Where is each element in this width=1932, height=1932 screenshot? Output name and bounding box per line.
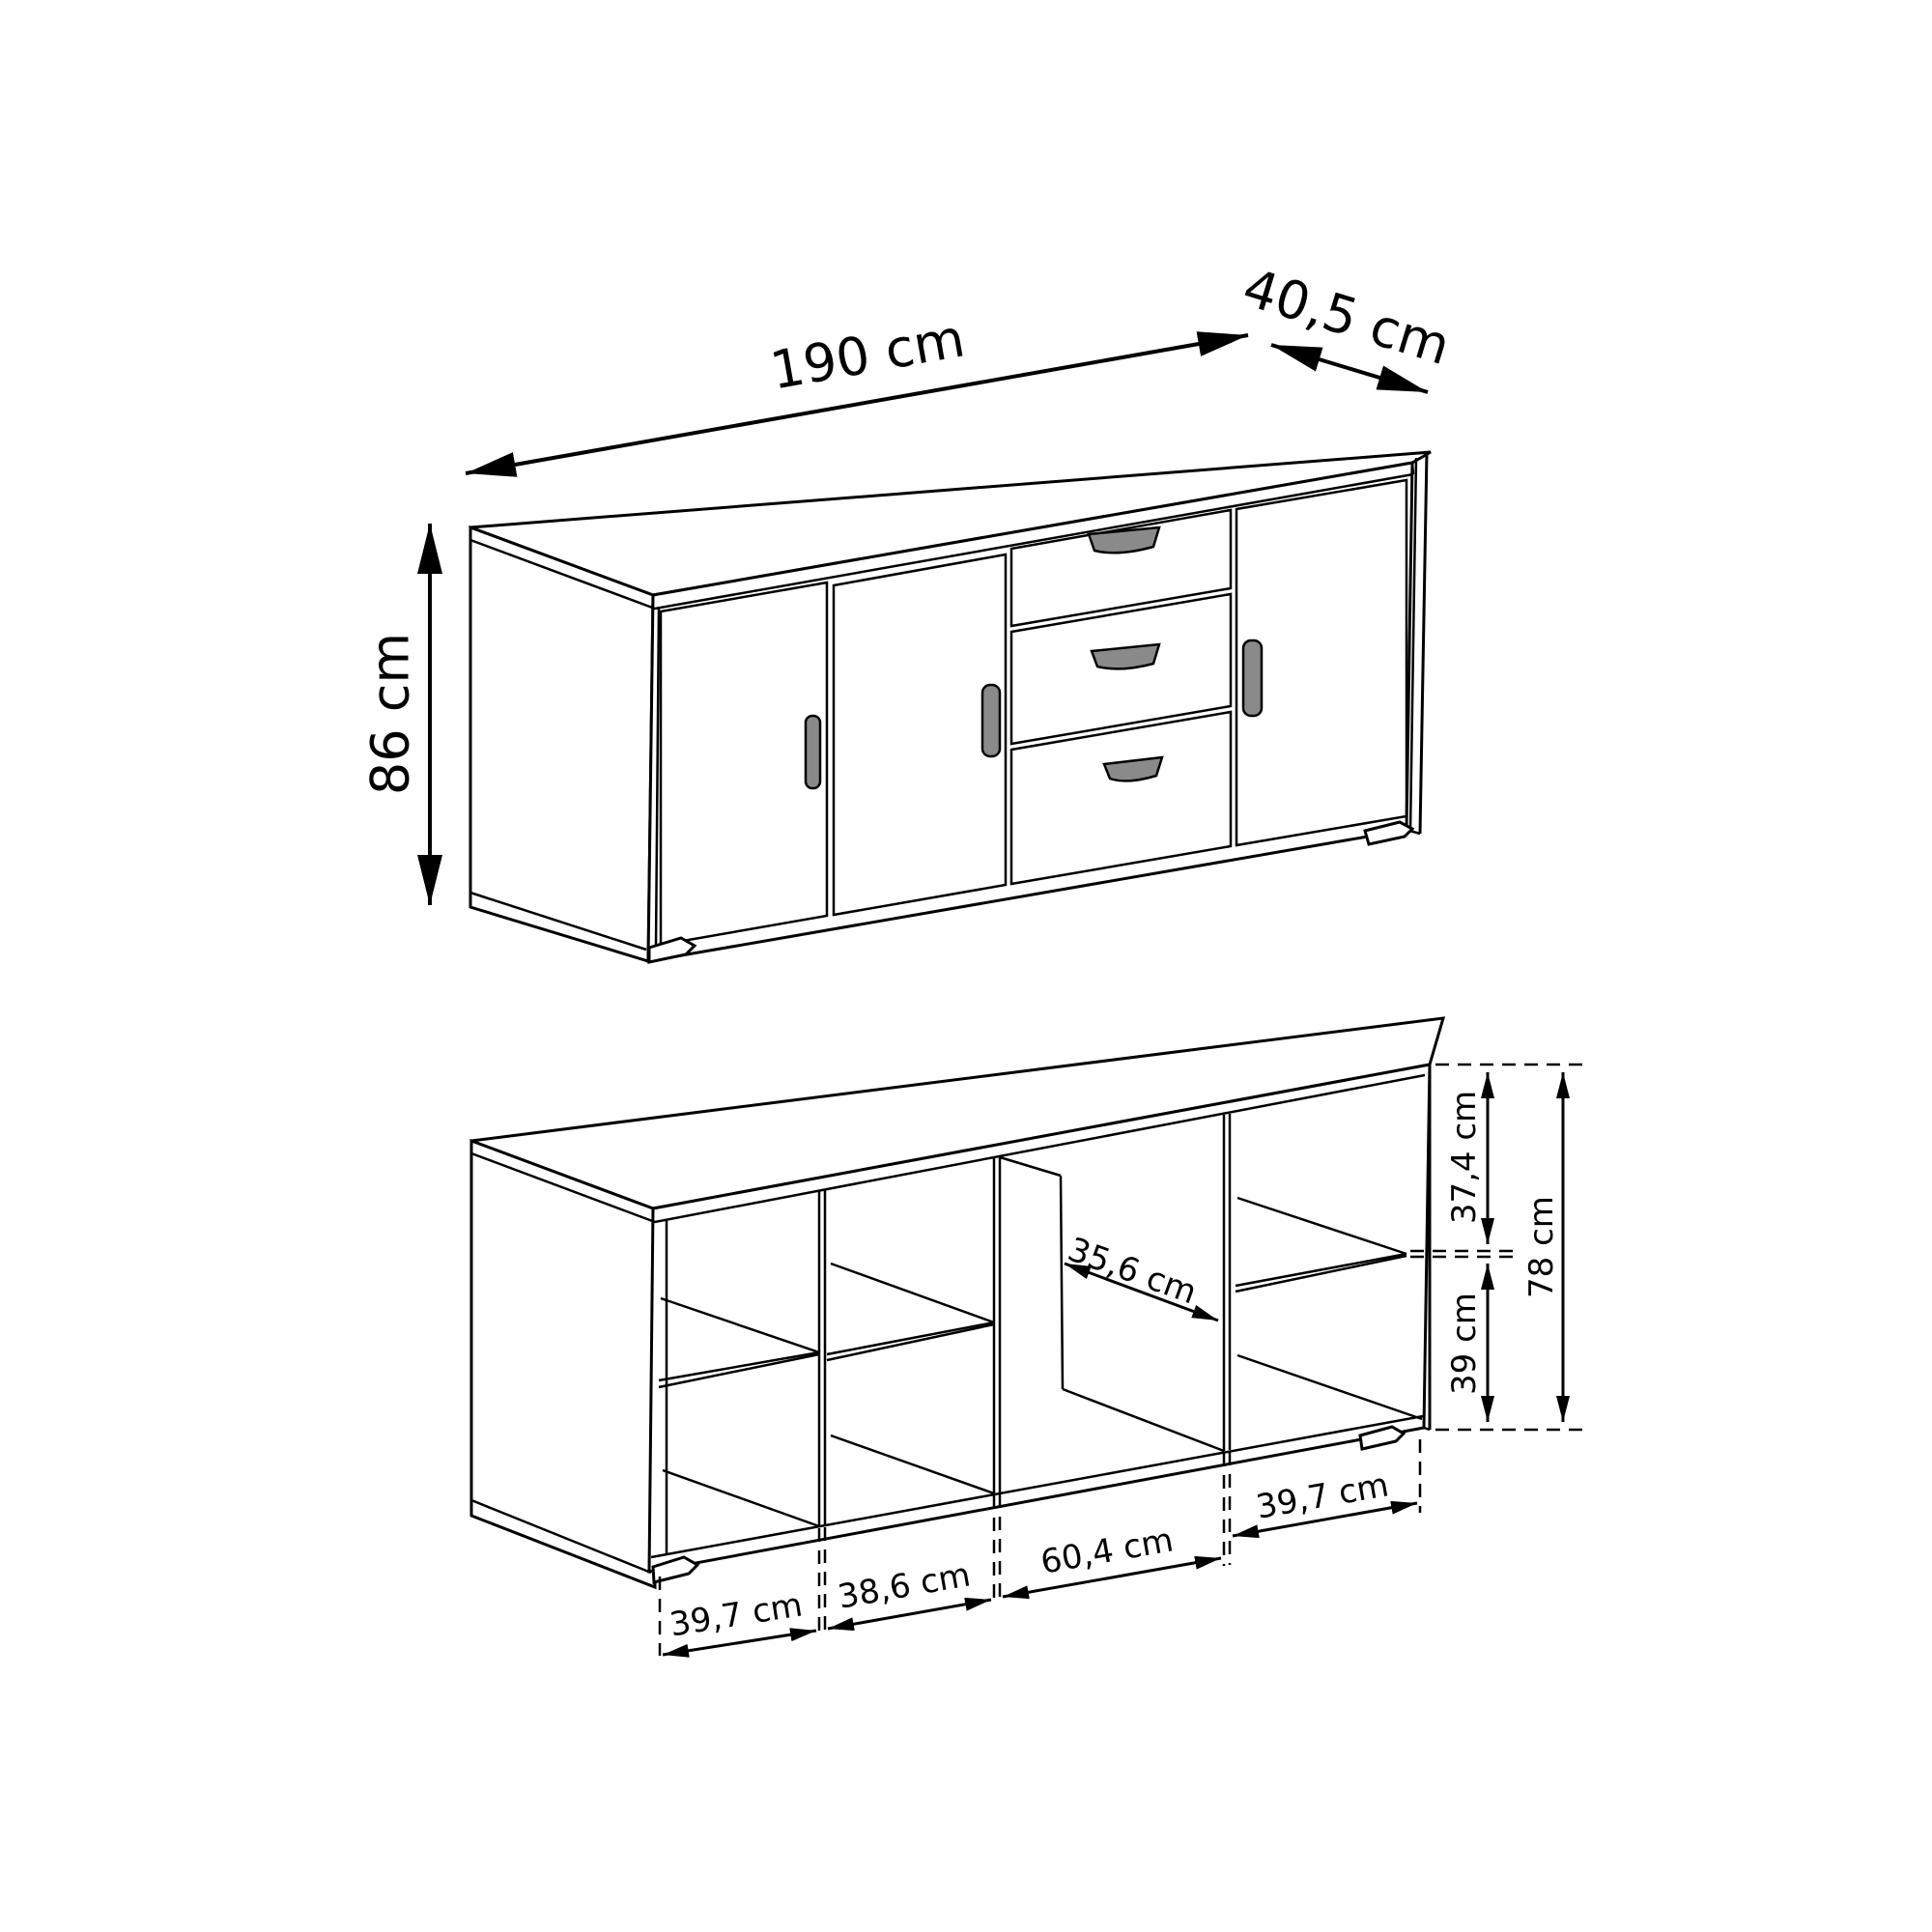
dim-label-height: 86 cm: [360, 633, 421, 795]
door-right-handle: [1243, 640, 1262, 716]
diagram-canvas: 190 cm 40,5 cm 86 cm: [0, 0, 1932, 1932]
door-left-handle: [806, 716, 820, 788]
furniture-dimension-diagram: 190 cm 40,5 cm 86 cm: [0, 0, 1932, 1932]
right-panel-outer-edge: [1420, 452, 1427, 834]
interior-left-side-panel: [471, 1141, 655, 1587]
sideboard-interior-view: 37,4 cm 39 cm 78 cm 35,6 cm 39,7 cm 38,6…: [471, 1018, 1584, 1656]
dim-label-compartment-4: 39,7 cm: [1253, 1465, 1391, 1526]
dim-label-width: 190 cm: [766, 307, 969, 401]
dim-label-upper-height: 37,4 cm: [1445, 1091, 1484, 1224]
top-panel-edge-join: [1412, 463, 1413, 474]
dim-label-depth: 40,5 cm: [1236, 257, 1458, 377]
sideboard-perspective-view: 190 cm 40,5 cm 86 cm: [360, 257, 1458, 962]
dim-label-interior-height: 78 cm: [1522, 1196, 1561, 1298]
dim-label-compartment-3: 60,4 cm: [1037, 1520, 1176, 1581]
door-middle-handle: [982, 685, 1000, 756]
left-side-panel: [470, 527, 653, 961]
dim-label-lower-height: 39 cm: [1445, 1293, 1484, 1395]
